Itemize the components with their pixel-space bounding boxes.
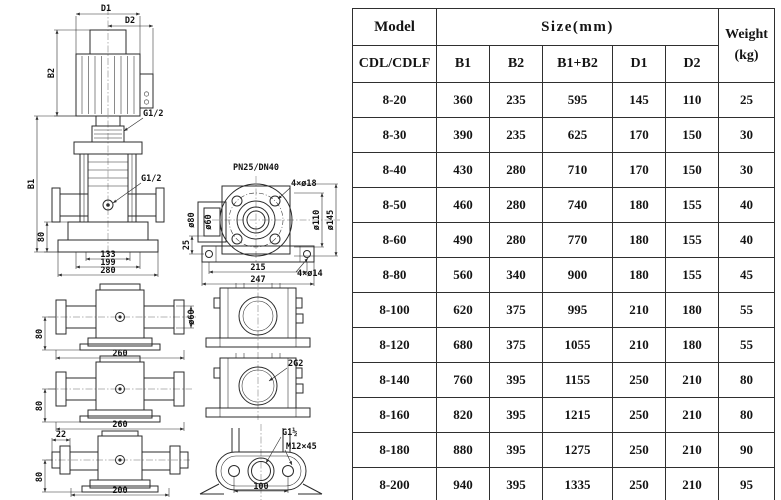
dim-port-dia-a: ø60 (187, 309, 197, 324)
dim-dia110: ø110 (312, 210, 322, 230)
dim-width-b: 260 (112, 420, 127, 430)
dim-width-c: 200 (112, 486, 127, 496)
table-row: 8-140 760 395 1155 250 210 80 (353, 363, 775, 398)
model-cell: 8-40 (353, 153, 437, 188)
dim-25: 25 (182, 240, 192, 250)
flange-top-view: PN25/DN40 4×ø18 ø80 ø60 25 (182, 163, 340, 286)
vent-plug-label: G1/2 (143, 109, 163, 119)
table-row: 8-180 880 395 1275 250 210 90 (353, 433, 775, 468)
model-cell: 8-200 (353, 468, 437, 500)
dim-b1: B1 (27, 179, 37, 189)
suction-flange (52, 188, 60, 222)
bolt-hole-left (229, 466, 240, 477)
dim-100: 100 (253, 482, 268, 492)
dim-port-height-b: 80 (35, 401, 45, 411)
dim-d1: D1 (101, 4, 111, 14)
header-weight: Weight (kg) (719, 9, 775, 83)
table-row: 8-200 940 395 1335 250 210 95 (353, 468, 775, 500)
dim-nut-c: 22 (56, 430, 66, 440)
port-face-view-a (206, 280, 310, 350)
pump-dimension-drawing: D1 D2 B2 B1 G1/2 (0, 0, 345, 500)
model-cell: 8-50 (353, 188, 437, 223)
model-cell: 8-140 (353, 363, 437, 398)
header-size: Size(mm) (437, 9, 719, 46)
junction-box (140, 74, 153, 108)
port-side-view-b: 80 260 (35, 356, 192, 431)
page: D1 D2 B2 B1 G1/2 (0, 0, 781, 500)
table-row: 8-80 560 340 900 180 155 45 (353, 258, 775, 293)
bolt-size-label: M12×45 (286, 442, 317, 452)
dim-280: 280 (100, 266, 115, 276)
model-cell: 8-160 (353, 398, 437, 433)
table-row: 8-100 620 375 995 210 180 55 (353, 293, 775, 328)
model-cell: 8-80 (353, 258, 437, 293)
model-cell: 8-30 (353, 118, 437, 153)
bolt-hole-right (283, 466, 294, 477)
thread-size-label: G1½ (282, 427, 297, 438)
header-col-d1: D1 (613, 46, 666, 83)
header-model-sub: CDL/CDLF (353, 46, 437, 83)
dim-dia80: ø80 (187, 212, 197, 227)
table-row: 8-20 360 235 595 145 110 25 (353, 83, 775, 118)
header-col-b1: B1 (437, 46, 490, 83)
dim-dia145: ø145 (326, 210, 336, 230)
model-cell: 8-120 (353, 328, 437, 363)
oval-flange-view: G1½ M12×45 100 (200, 424, 322, 500)
model-cell: 8-180 (353, 433, 437, 468)
port-thread-label: 2G2 (288, 359, 303, 369)
flange-rating-label: PN25/DN40 (233, 163, 279, 173)
port-side-view-a: 80 260 ø60 (35, 284, 197, 360)
model-cell: 8-60 (353, 223, 437, 258)
header-weight-line2: (kg) (719, 46, 774, 66)
table-row: 8-50 460 280 740 180 155 40 (353, 188, 775, 223)
table-row: 8-40 430 280 710 170 150 30 (353, 153, 775, 188)
dim-b2: B2 (47, 68, 57, 78)
pump-front-view: D1 D2 B2 B1 G1/2 (27, 4, 164, 277)
dim-d2: D2 (125, 16, 135, 26)
base-holes-label: 4×ø14 (297, 269, 323, 279)
dim-port-height-c: 80 (35, 472, 45, 482)
table-header-row-1: Model Size(mm) Weight (kg) (353, 9, 775, 46)
dim-dia60: ø60 (204, 214, 214, 229)
model-cell: 8-20 (353, 83, 437, 118)
dim-width-a: 260 (112, 349, 127, 359)
table-row: 8-120 680 375 1055 210 180 55 (353, 328, 775, 363)
discharge-flange (156, 188, 164, 222)
table-row: 8-60 490 280 770 180 155 40 (353, 223, 775, 258)
dim-base-height: 80 (37, 232, 47, 242)
model-cell: 8-100 (353, 293, 437, 328)
header-col-b2: B2 (490, 46, 543, 83)
drain-plug-label: G1/2 (141, 174, 161, 184)
header-model: Model (353, 9, 437, 46)
port-face-view-b: 2G2 (206, 352, 310, 420)
header-col-d2: D2 (666, 46, 719, 83)
dimension-table: Model Size(mm) Weight (kg) CDL/CDLF B1 B… (352, 8, 775, 500)
table-row: 8-30 390 235 625 170 150 30 (353, 118, 775, 153)
table-header-row-2: CDL/CDLF B1 B2 B1+B2 D1 D2 (353, 46, 775, 83)
table-row: 8-160 820 395 1215 250 210 80 (353, 398, 775, 433)
dim-215: 215 (250, 263, 265, 273)
header-col-b1b2: B1+B2 (543, 46, 613, 83)
header-weight-line1: Weight (719, 25, 774, 45)
dim-port-height-a: 80 (35, 329, 45, 339)
port-side-view-c: 22 80 200 (35, 430, 190, 497)
